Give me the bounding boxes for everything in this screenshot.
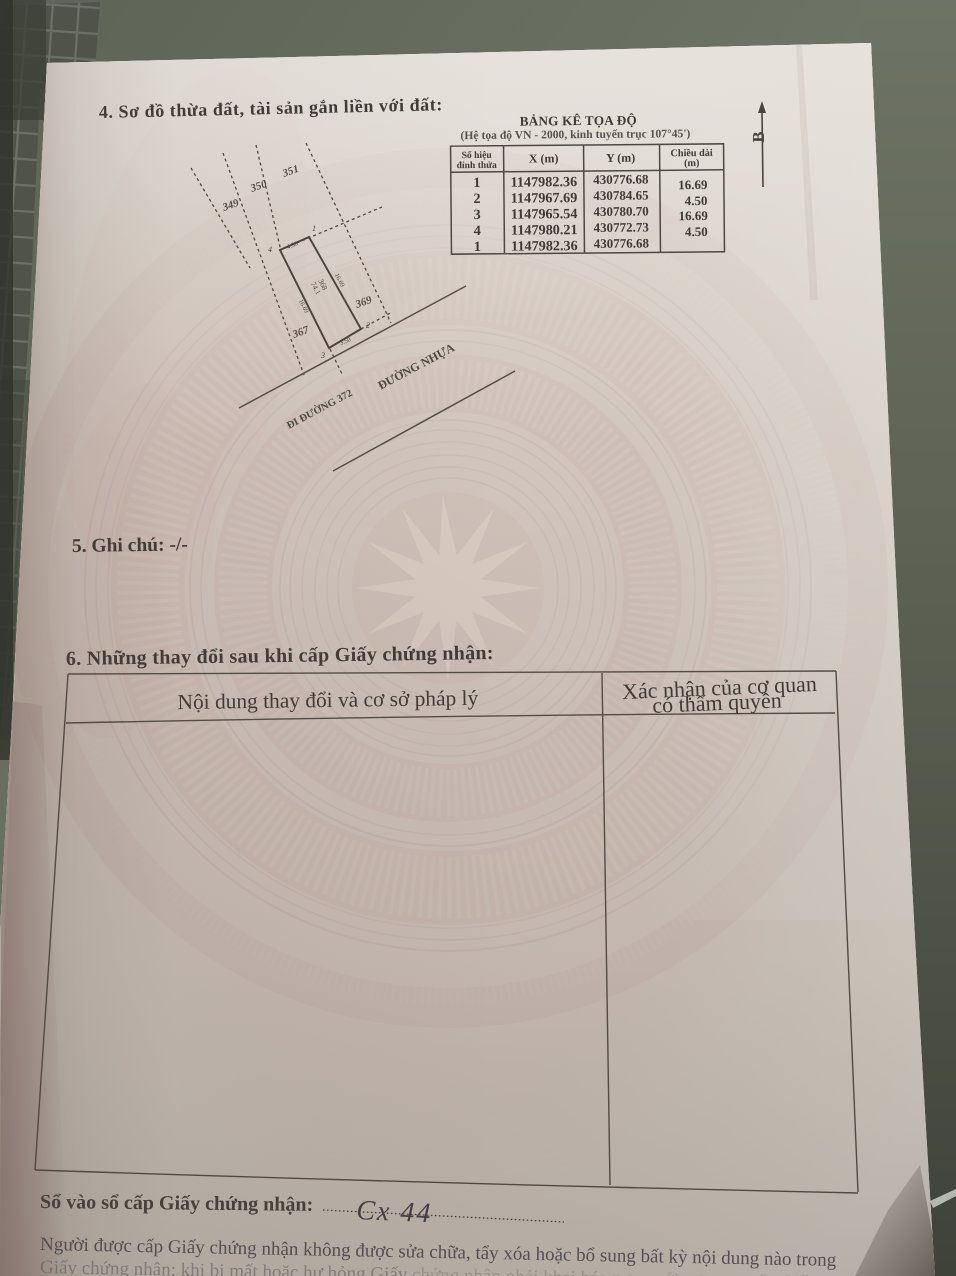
svg-text:430776.68: 430776.68 <box>593 171 649 186</box>
svg-text:4: 4 <box>268 245 272 254</box>
svg-text:2: 2 <box>473 191 480 207</box>
svg-text:1: 1 <box>312 224 316 233</box>
svg-text:Nội dung thay đổi và cơ sở phá: Nội dung thay đổi và cơ sở pháp lý <box>177 686 478 714</box>
svg-text:đỉnh thửa: đỉnh thửa <box>457 160 497 171</box>
svg-text:Sổ vào sổ cấp Giấy chứng nhận:: Sổ vào sổ cấp Giấy chứng nhận: <box>40 1191 313 1216</box>
svg-text:3: 3 <box>320 351 325 360</box>
svg-text:1147982.36: 1147982.36 <box>511 238 578 255</box>
svg-text:B: B <box>749 131 768 142</box>
svg-text:(Hệ tọa độ VN - 2000, kinh tuy: (Hệ tọa độ VN - 2000, kinh tuyến trục 10… <box>460 127 690 142</box>
svg-text:430780.70: 430780.70 <box>593 203 648 218</box>
svg-text:5. Ghi chú: -/-: 5. Ghi chú: -/- <box>72 534 188 557</box>
svg-text:Y (m): Y (m) <box>606 151 635 165</box>
svg-text:X (m): X (m) <box>529 151 559 165</box>
svg-text:(m): (m) <box>684 158 699 169</box>
svg-text:1147980.21: 1147980.21 <box>511 222 578 239</box>
svg-text:4: 4 <box>474 223 481 239</box>
svg-text:430772.73: 430772.73 <box>594 219 650 234</box>
svg-text:4.50: 4.50 <box>685 193 708 208</box>
svg-text:430784.65: 430784.65 <box>593 187 649 202</box>
svg-text:BẢNG KÊ TỌA ĐỘ: BẢNG KÊ TỌA ĐỘ <box>520 113 637 129</box>
svg-text:Cx 44: Cx 44 <box>356 1195 433 1229</box>
svg-text:2: 2 <box>366 321 370 330</box>
svg-text:1: 1 <box>473 175 480 191</box>
svg-text:1147967.69: 1147967.69 <box>511 190 578 207</box>
svg-text:4.50: 4.50 <box>685 224 708 239</box>
svg-text:1: 1 <box>474 239 481 255</box>
svg-text:16.69: 16.69 <box>678 208 708 223</box>
svg-text:430776.68: 430776.68 <box>594 235 650 250</box>
svg-text:1147982.36: 1147982.36 <box>510 174 577 191</box>
svg-text:16.69: 16.69 <box>678 177 708 192</box>
svg-text:3: 3 <box>474 207 481 223</box>
svg-text:1147965.54: 1147965.54 <box>511 206 578 223</box>
